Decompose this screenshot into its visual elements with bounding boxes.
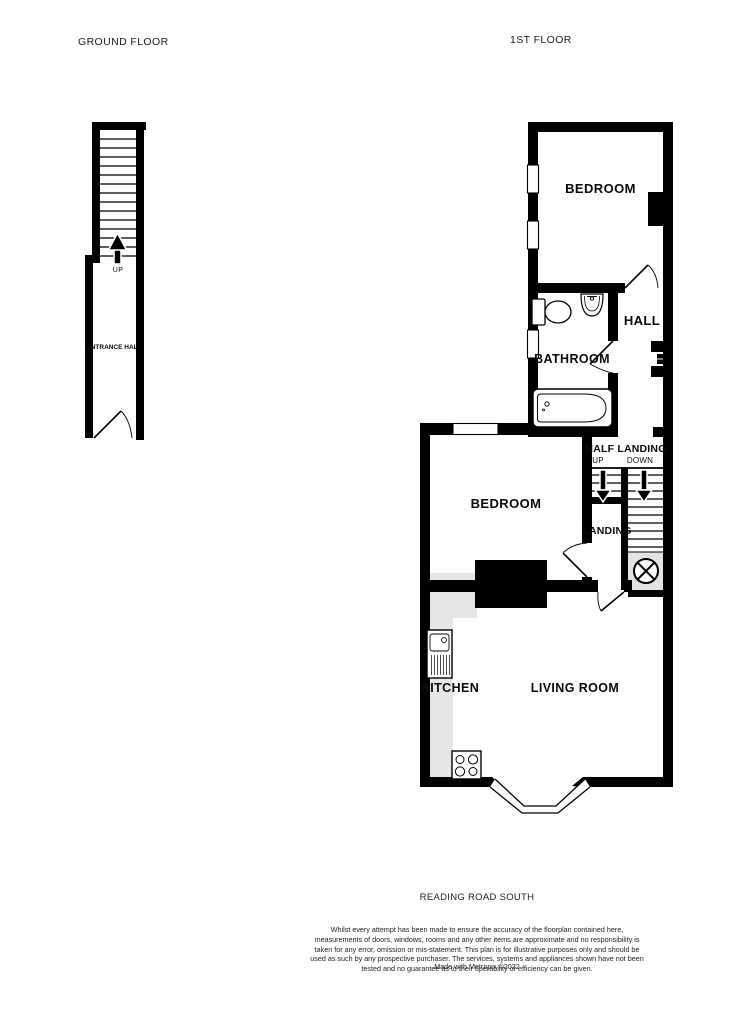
bathtub-icon (533, 389, 612, 427)
first-floor-title: 1ST FLOOR (510, 34, 572, 46)
room-label-kitchen: KITCHEN (418, 681, 482, 695)
first-floor-plan (420, 122, 673, 813)
floorplan-canvas (0, 0, 756, 1024)
credit-text: Made with Metropix ©2022 (307, 962, 647, 971)
kitchen-sink-icon (427, 630, 452, 678)
ground-floor-plan (85, 122, 146, 440)
room-label-bedroom-middle: BEDROOM (430, 496, 582, 511)
entrance-door-swing (94, 411, 132, 438)
room-label-bedroom-top: BEDROOM (528, 181, 673, 196)
room-label-living-room: LIVING ROOM (505, 681, 645, 695)
gf-stairs-up-label: UP (106, 267, 130, 274)
stairs-up-label: UP (585, 456, 611, 465)
floorplan-page: GROUND FLOOR 1ST FLOOR UP ENTRANCE HALL … (0, 0, 756, 1024)
ground-floor-title: GROUND FLOOR (78, 36, 169, 48)
room-label-entrance-hall: ENTRANCE HALL (85, 344, 143, 351)
address-title: READING ROAD SOUTH (277, 892, 677, 903)
wall (85, 122, 146, 440)
room-label-bathroom: BATHROOM (530, 352, 614, 366)
window (453, 165, 539, 435)
room-label-landing: LANDING (576, 525, 638, 537)
toilet-icon (532, 299, 571, 325)
hob-icon (452, 751, 481, 779)
room-label-half-landing: HALF LANDING (584, 443, 668, 455)
room-label-hall: HALL (616, 313, 668, 328)
sink-icon (581, 294, 603, 316)
stairs-down-label: DOWN (622, 456, 658, 465)
extractor-fan-icon (634, 559, 658, 583)
hall-cupboard (651, 341, 663, 377)
